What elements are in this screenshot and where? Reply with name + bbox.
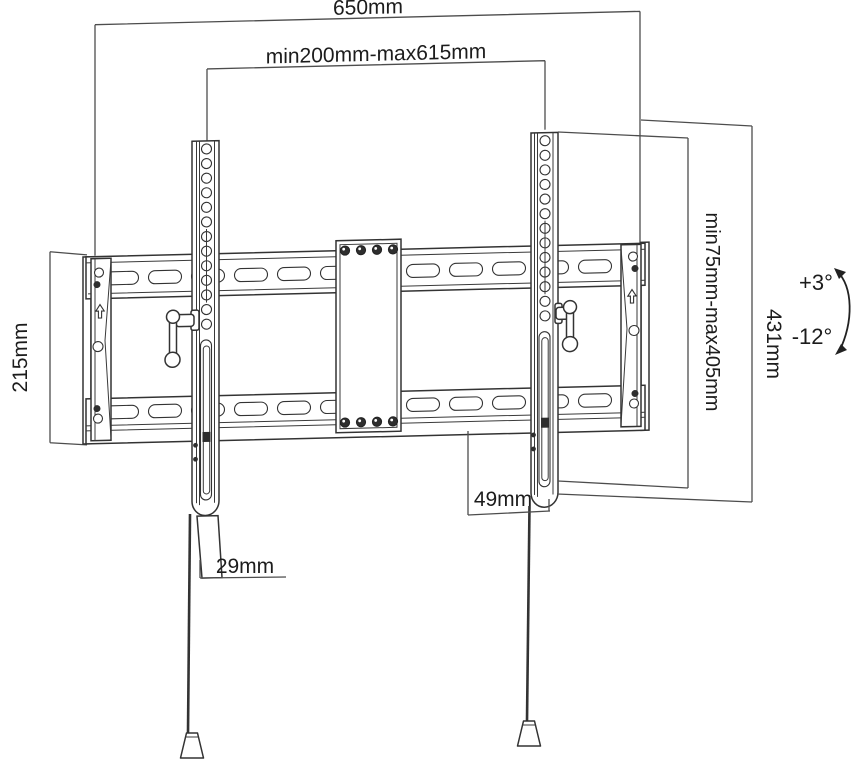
- left-end-cap: [91, 258, 111, 440]
- right-arm: [531, 132, 558, 507]
- dim-arm-spacing: min200mm-max615mm: [207, 39, 545, 143]
- dim-49-label: 49mm: [474, 488, 532, 511]
- tilt-arrow-up-icon: [834, 268, 846, 279]
- center-plate: [336, 239, 401, 433]
- dim-200-615-label: min200mm-max615mm: [266, 40, 487, 68]
- right-arm-latch: [541, 418, 549, 428]
- left-arm: [192, 141, 222, 579]
- tilt-arc: [837, 271, 850, 352]
- dim-29-label: 29mm: [216, 555, 274, 578]
- dim-plate-height: 215mm: [9, 251, 87, 447]
- diagram-canvas: 650mm min200mm-max615mm 215mm: [0, 0, 858, 760]
- dim-215-label: 215mm: [9, 322, 32, 393]
- dim-75-405-label: min75mm-max405mm: [701, 213, 723, 412]
- wall-mount-technical-drawing: 650mm min200mm-max615mm 215mm: [0, 0, 858, 760]
- left-arm-latch: [203, 432, 211, 442]
- dim-431-label: 431mm: [762, 309, 785, 379]
- tilt-up-label: +3°: [799, 270, 833, 295]
- right-pull-cord: [518, 506, 541, 746]
- tilt-down-label: -12°: [792, 324, 833, 349]
- tilt-indicator: +3° -12°: [792, 268, 850, 355]
- right-end-cap: [621, 244, 641, 426]
- dim-arm-height: 431mm: [557, 120, 785, 502]
- mount-assembly: 650mm min200mm-max615mm 215mm: [9, 0, 649, 583]
- tilt-arrow-down-icon: [835, 344, 847, 355]
- dim-650-label: 650mm: [333, 0, 403, 20]
